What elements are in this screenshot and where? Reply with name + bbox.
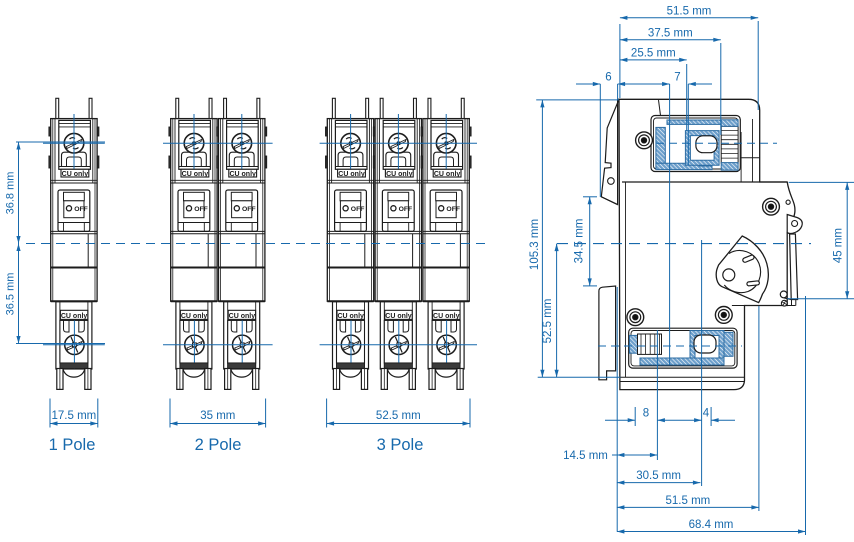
svg-text:35 mm: 35 mm: [200, 410, 235, 422]
svg-text:17.5 mm: 17.5 mm: [52, 410, 97, 422]
svg-text:CU only: CU only: [385, 313, 412, 320]
svg-text:25.5 mm: 25.5 mm: [631, 48, 676, 60]
svg-text:37.5 mm: 37.5 mm: [648, 28, 693, 40]
svg-text:36.8 mm: 36.8 mm: [5, 172, 17, 215]
svg-text:4: 4: [703, 408, 710, 420]
svg-text:CU only: CU only: [61, 313, 88, 320]
svg-text:CU only: CU only: [229, 171, 256, 178]
svg-text:CU only: CU only: [229, 313, 256, 320]
svg-text:45 mm: 45 mm: [833, 228, 845, 263]
svg-text:7: 7: [674, 72, 680, 84]
svg-text:OFF: OFF: [399, 206, 413, 213]
svg-text:52.5 mm: 52.5 mm: [542, 299, 554, 344]
svg-text:51.5 mm: 51.5 mm: [666, 495, 711, 507]
svg-text:CU only: CU only: [338, 171, 365, 178]
svg-text:OFF: OFF: [74, 206, 88, 213]
svg-text:OFF: OFF: [351, 206, 365, 213]
svg-text:68.4 mm: 68.4 mm: [689, 519, 734, 531]
svg-text:CU only: CU only: [337, 313, 364, 320]
svg-text:CU only: CU only: [182, 171, 209, 178]
svg-text:52.5 mm: 52.5 mm: [376, 410, 421, 422]
svg-text:CU only: CU only: [181, 313, 208, 320]
svg-text:3 Pole: 3 Pole: [377, 436, 424, 454]
svg-text:34.5 mm: 34.5 mm: [574, 219, 586, 264]
svg-text:6: 6: [605, 72, 611, 84]
svg-text:CU only: CU only: [386, 171, 413, 178]
svg-text:CU only: CU only: [62, 171, 89, 178]
svg-text:51.5 mm: 51.5 mm: [667, 6, 712, 18]
svg-text:CU only: CU only: [433, 313, 460, 320]
svg-text:30.5 mm: 30.5 mm: [636, 470, 681, 482]
svg-text:OFF: OFF: [446, 206, 460, 213]
svg-text:105.3 mm: 105.3 mm: [529, 219, 541, 270]
svg-text:CU only: CU only: [434, 171, 461, 178]
svg-text:2 Pole: 2 Pole: [195, 436, 242, 454]
svg-text:8: 8: [643, 408, 649, 420]
svg-text:36.5 mm: 36.5 mm: [5, 273, 17, 316]
svg-text:OFF: OFF: [242, 206, 256, 213]
svg-text:1 Pole: 1 Pole: [49, 436, 96, 454]
svg-text:14.5 mm: 14.5 mm: [563, 450, 608, 462]
svg-text:OFF: OFF: [194, 206, 208, 213]
